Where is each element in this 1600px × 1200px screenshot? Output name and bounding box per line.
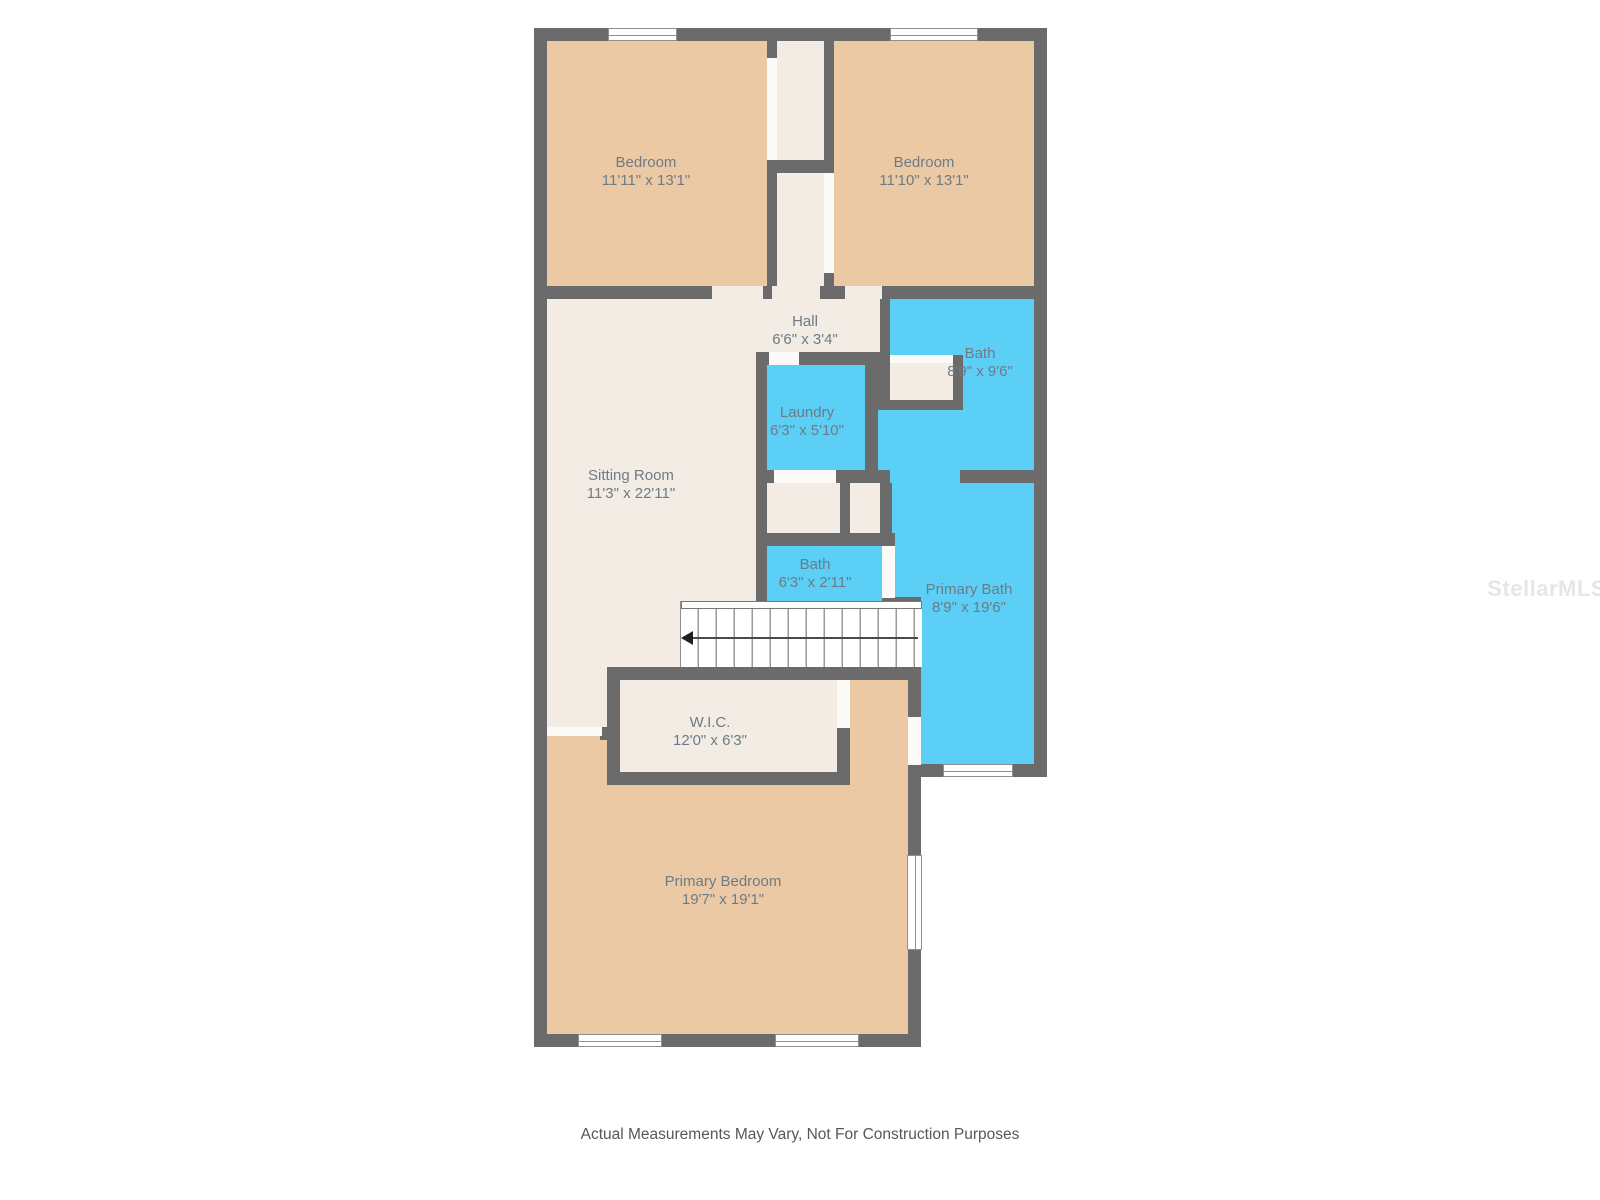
- door-opening-closet-3: [774, 470, 836, 483]
- window-primary-bedroom-right: [907, 855, 922, 950]
- wall-bath-bottom-right: [960, 470, 1034, 483]
- window-bedroom-1: [608, 28, 677, 41]
- wall-bath-2-top: [756, 533, 895, 546]
- stellar-mls-watermark: StellarMLS: [1487, 576, 1600, 602]
- disclaimer-text: Actual Measurements May Vary, Not For Co…: [0, 1126, 1600, 1144]
- door-opening-closet-1: [767, 58, 777, 160]
- wall-wic-left: [607, 667, 620, 785]
- primary-bath-floor-lower: [908, 597, 1034, 764]
- room-label-primary-bedroom: Primary Bedroom 19'7" x 19'1": [665, 873, 782, 909]
- room-label-laundry: Laundry 6'3" x 5'10": [770, 404, 844, 440]
- wall-closet-2-left: [767, 173, 777, 286]
- room-name: Bedroom: [602, 154, 690, 172]
- door-opening-primary-bedroom: [547, 727, 602, 736]
- room-name: Primary Bedroom: [665, 873, 782, 891]
- door-opening-bedroom-2: [845, 286, 882, 299]
- room-label-bedroom-1: Bedroom 11'11" x 13'1": [602, 154, 690, 190]
- room-dims: 11'10" x 13'1": [879, 172, 969, 190]
- wall-laundry-right: [865, 352, 878, 470]
- closet-3-floor: [767, 483, 840, 533]
- room-dims: 8'9" x 19'6": [926, 599, 1013, 617]
- room-label-bath-2: Bath 6'3" x 2'11": [779, 556, 852, 592]
- room-label-bedroom-2: Bedroom 11'10" x 13'1": [879, 154, 969, 190]
- room-label-primary-bath: Primary Bath 8'9" x 19'6": [926, 581, 1013, 617]
- primary-bedroom-floor-right: [850, 680, 908, 1034]
- door-opening-laundry: [769, 352, 799, 365]
- room-dims: 6'3" x 2'11": [779, 574, 852, 592]
- room-dims: 8'9" x 9'6": [947, 363, 1013, 381]
- wall-vestibule-stub: [878, 352, 890, 365]
- wall-outer-left: [534, 28, 547, 1047]
- room-label-wic: W.I.C. 12'0" x 6'3": [673, 714, 747, 750]
- staircase: [680, 601, 922, 667]
- door-opening-primary-bath: [908, 717, 921, 765]
- room-name: Sitting Room: [587, 467, 675, 485]
- vestibule-floor: [890, 360, 953, 400]
- window-bedroom-2: [890, 28, 978, 41]
- room-dims: 12'0" x 6'3": [673, 732, 747, 750]
- room-label-hall: Hall 6'6" x 3'4": [772, 313, 838, 349]
- floor-plan: Bedroom 11'11" x 13'1" Bedroom 11'10" x …: [524, 28, 1047, 1048]
- room-name: Hall: [772, 313, 838, 331]
- wall-closet-mid: [767, 160, 834, 173]
- primary-bedroom-floor-left: [547, 735, 607, 1034]
- floor-plan-page: Bedroom 11'11" x 13'1" Bedroom 11'10" x …: [0, 0, 1600, 1200]
- room-label-bath: Bath 8'9" x 9'6": [947, 345, 1013, 381]
- room-dims: 19'7" x 19'1": [665, 891, 782, 909]
- room-dims: 6'6" x 3'4": [772, 331, 838, 349]
- stair-direction-line: [693, 637, 918, 639]
- wall-vestibule-bottom: [878, 400, 963, 410]
- room-dims: 11'11" x 13'1": [602, 172, 690, 190]
- door-opening-wic: [837, 680, 850, 728]
- door-opening-closet-2: [824, 173, 834, 273]
- closet-1-floor: [777, 41, 824, 160]
- door-opening-vestibule: [890, 355, 953, 363]
- room-name: W.I.C.: [673, 714, 747, 732]
- window-primary-bedroom-bottom-1: [578, 1034, 662, 1047]
- wall-sitting-door-stub: [600, 727, 620, 740]
- primary-bath-throat: [878, 410, 890, 470]
- wall-wic-bottom: [607, 772, 850, 785]
- door-opening-closet-hall: [772, 286, 820, 299]
- room-name: Bath: [947, 345, 1013, 363]
- primary-bath-floor-upper: [890, 470, 1034, 597]
- room-label-sitting-room: Sitting Room 11'3" x 22'11": [587, 467, 675, 503]
- window-primary-bath: [943, 764, 1013, 777]
- closet-2-floor: [777, 173, 824, 286]
- room-name: Primary Bath: [926, 581, 1013, 599]
- stair-landing-edge: [681, 601, 922, 609]
- window-primary-bedroom-bottom-2: [775, 1034, 859, 1047]
- room-name: Bath: [779, 556, 852, 574]
- room-name: Laundry: [770, 404, 844, 422]
- door-opening-bath-2: [882, 546, 895, 598]
- room-name: Bedroom: [879, 154, 969, 172]
- wall-wic-top: [607, 667, 921, 680]
- door-opening-bedroom-1: [712, 286, 763, 299]
- wall-closet-1-right: [824, 41, 834, 160]
- wall-closet-stub-top: [767, 41, 777, 58]
- room-dims: 11'3" x 22'11": [587, 485, 675, 503]
- wall-closet-stub-bottom: [824, 273, 834, 286]
- room-dims: 6'3" x 5'10": [770, 422, 844, 440]
- stairs-arrow-icon: [681, 631, 693, 645]
- wall-outer-right-upper: [1034, 28, 1047, 777]
- primary-bedroom-floor-main: [607, 785, 850, 1034]
